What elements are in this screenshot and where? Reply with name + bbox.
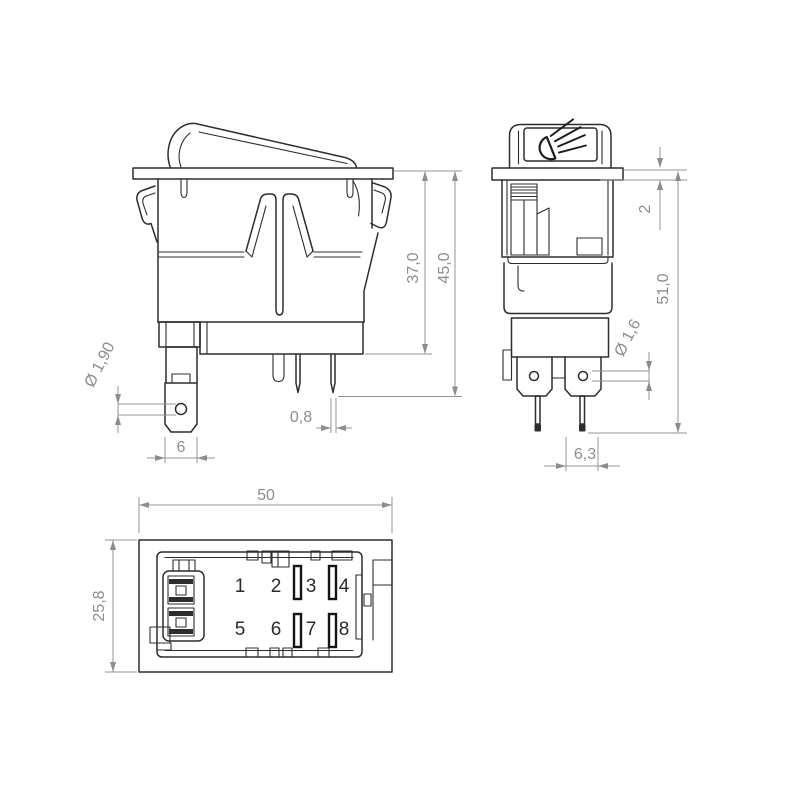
- front-view: 2 51,0 Ø 1,6 6,3: [492, 117, 687, 471]
- rocker-switch-drawing: 37,0 45,0 Ø 1,90 6 0,8: [0, 0, 800, 800]
- bottom-view: 1 2 3 4 5 6 7 8 50 25,8: [91, 487, 392, 672]
- terminal-5: 5: [235, 619, 246, 640]
- front-housing: [502, 180, 613, 257]
- bottom-dim-depth: 25,8: [91, 540, 137, 672]
- side-flange: [133, 168, 393, 179]
- side-dim-heights: 37,0 45,0: [338, 171, 462, 397]
- terminal-6: 6: [271, 619, 282, 640]
- side-blade-hole: [176, 404, 187, 415]
- dim-label-side-total-height: 45,0: [436, 252, 453, 283]
- side-dim-pin-thickness: 0,8: [290, 398, 352, 433]
- front-rocker-button: [510, 117, 612, 168]
- side-peg-right: [347, 179, 353, 198]
- terminal-7: 7: [306, 619, 317, 640]
- side-dim-hole: Ø 1,90: [82, 340, 176, 433]
- side-view: 37,0 45,0 Ø 1,90 6 0,8: [82, 123, 462, 463]
- dim-label-front-terminal-spacing: 6,3: [574, 446, 596, 463]
- side-peg-left: [181, 179, 187, 198]
- side-clip-right-inner: [374, 190, 385, 213]
- terminal-4: 4: [339, 576, 350, 597]
- side-base: [200, 322, 363, 382]
- dim-label-front-total-height: 51,0: [655, 273, 672, 304]
- dim-label-side-blade-width: 6: [177, 439, 186, 456]
- front-pins: [535, 396, 586, 432]
- side-clip-left-inner: [143, 193, 155, 215]
- front-blade-terminals: [517, 357, 601, 396]
- side-pin-left: [296, 354, 300, 393]
- front-dim-terminal-spacing: 6,3: [544, 437, 620, 471]
- side-pin-right: [331, 354, 335, 393]
- side-dim-blade-width: 6: [147, 437, 215, 463]
- dim-label-side-hole-diameter: Ø 1,90: [82, 340, 119, 391]
- bottom-right-notch: [373, 560, 392, 585]
- front-flange: [492, 168, 623, 180]
- technical-drawing-page: 37,0 45,0 Ø 1,90 6 0,8: [0, 0, 800, 800]
- side-rocker-actuator: [168, 123, 359, 216]
- side-blade-terminal: [165, 383, 197, 432]
- dim-label-bottom-width: 50: [257, 487, 275, 504]
- front-mid-body: [504, 257, 612, 314]
- front-blade-hole-right: [579, 372, 588, 381]
- dim-label-side-pin-thickness: 0,8: [290, 409, 312, 426]
- side-housing: [158, 179, 378, 322]
- dim-label-side-body-height: 37,0: [405, 252, 422, 283]
- bottom-connector: [163, 560, 204, 641]
- dim-label-bottom-depth: 25,8: [91, 590, 108, 621]
- bottom-dim-width: 50: [139, 487, 392, 533]
- terminal-2: 2: [271, 576, 282, 597]
- terminal-8: 8: [339, 619, 350, 640]
- front-blade-hole-left: [530, 372, 539, 381]
- terminal-1: 1: [235, 576, 246, 597]
- side-blade-holder: [159, 322, 200, 383]
- dim-label-front-flange-thickness: 2: [637, 204, 654, 213]
- dim-label-front-hole-diameter: Ø 1,6: [612, 317, 645, 360]
- terminal-3: 3: [306, 576, 317, 597]
